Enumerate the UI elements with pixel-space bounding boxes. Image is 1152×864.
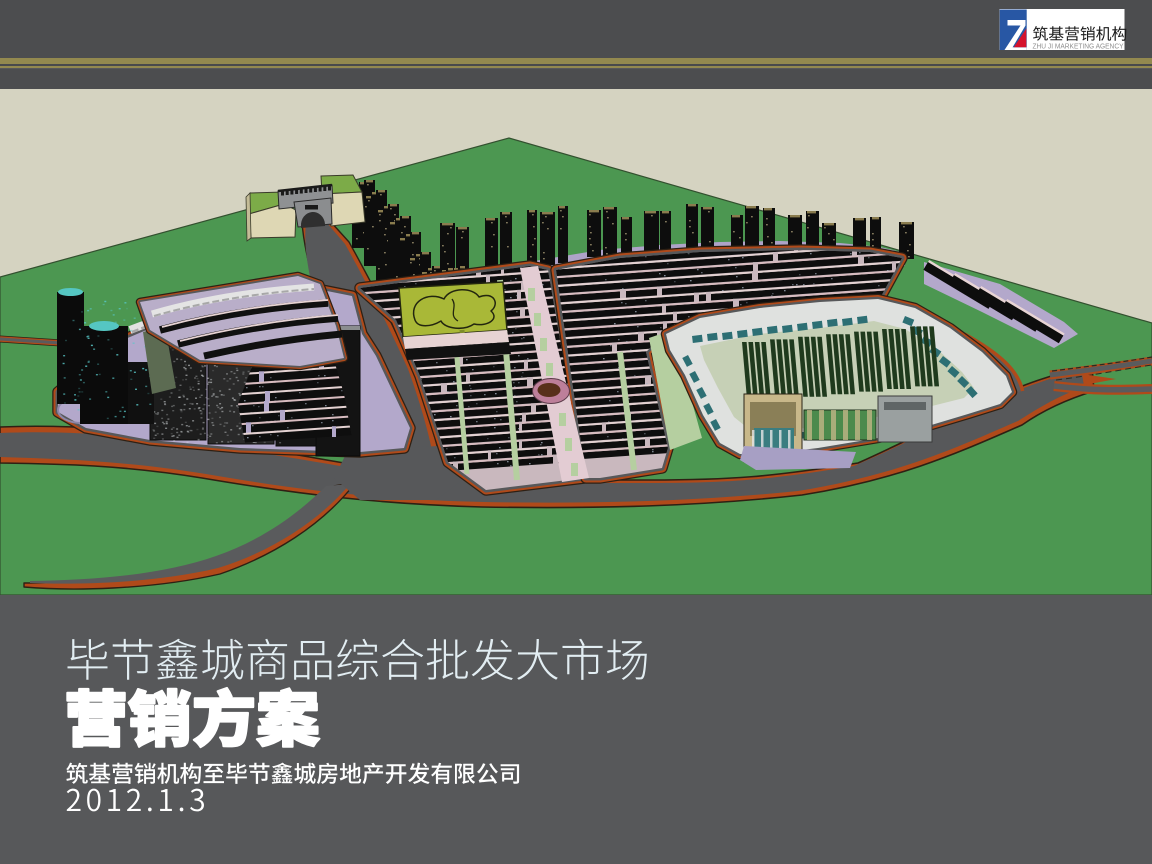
svg-text:ZHU JI MARKETING AGENCY: ZHU JI MARKETING AGENCY xyxy=(1033,42,1124,51)
